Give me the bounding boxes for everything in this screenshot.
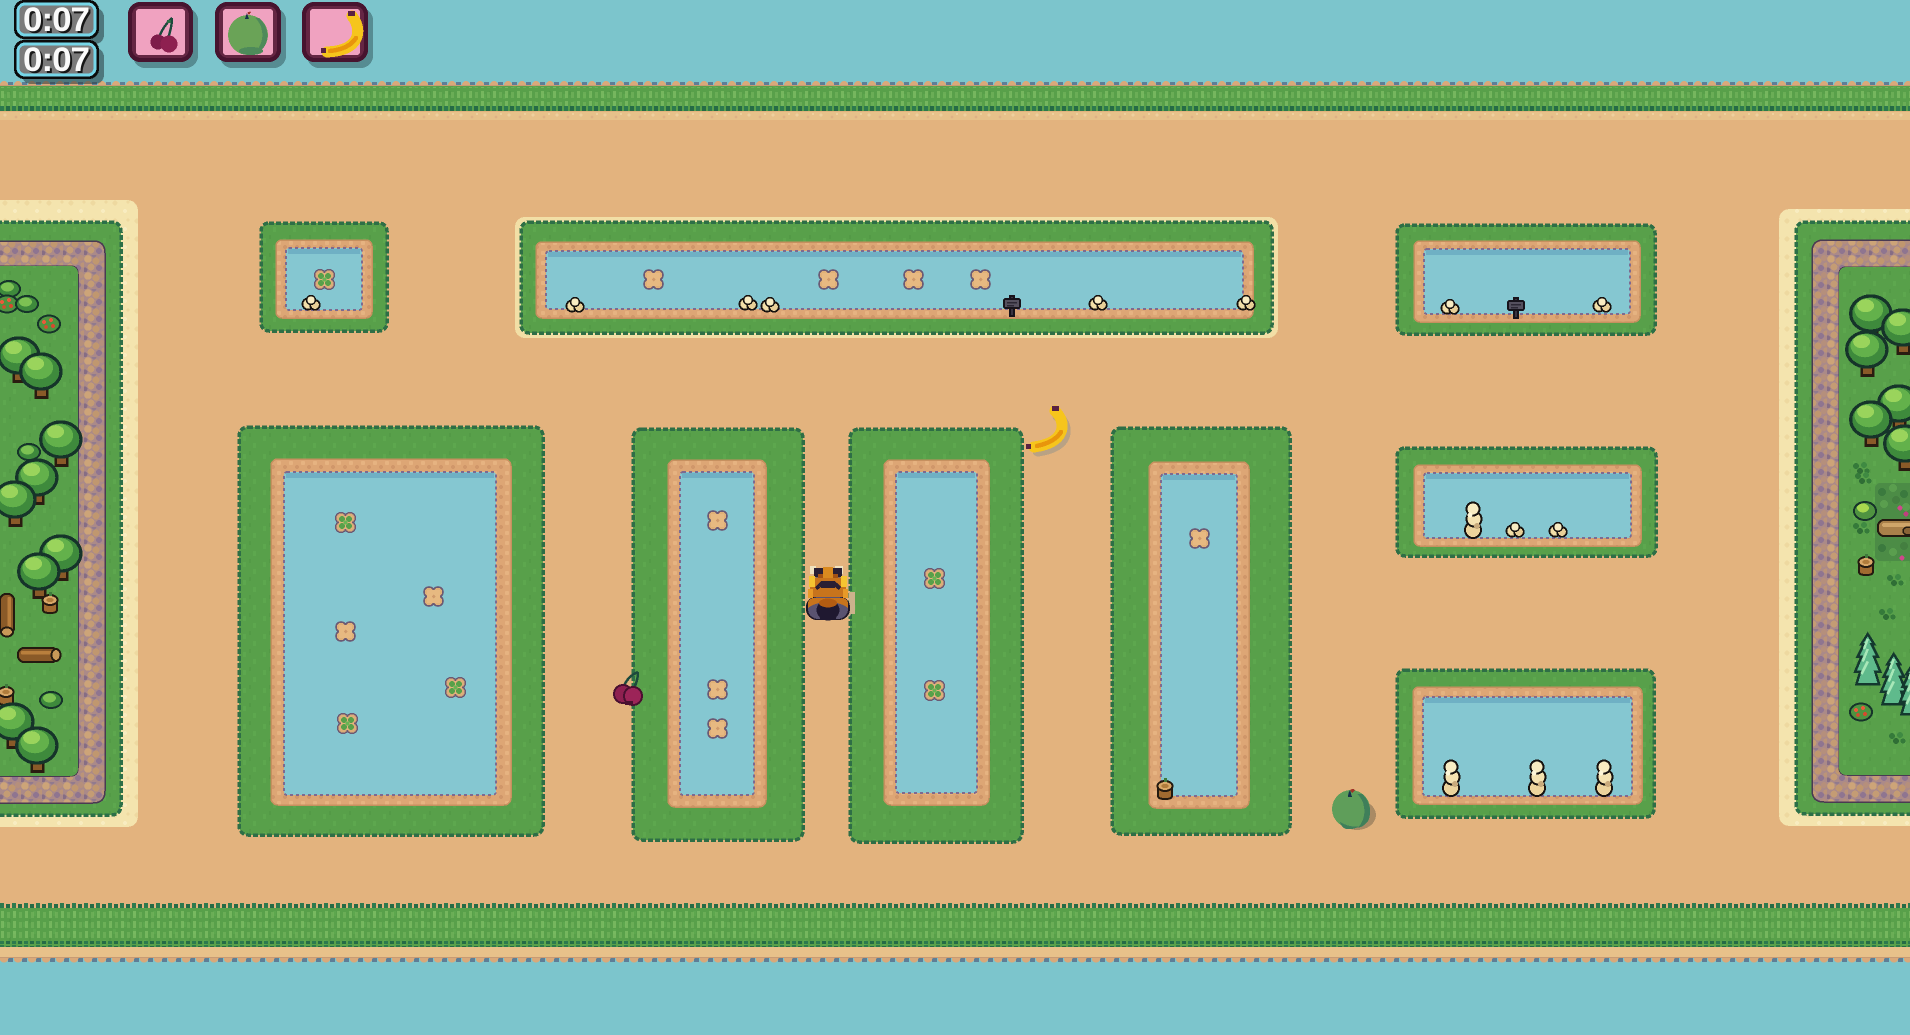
svg-text:0:07: 0:07 (23, 1, 89, 39)
svg-text:0:07: 0:07 (23, 41, 89, 79)
